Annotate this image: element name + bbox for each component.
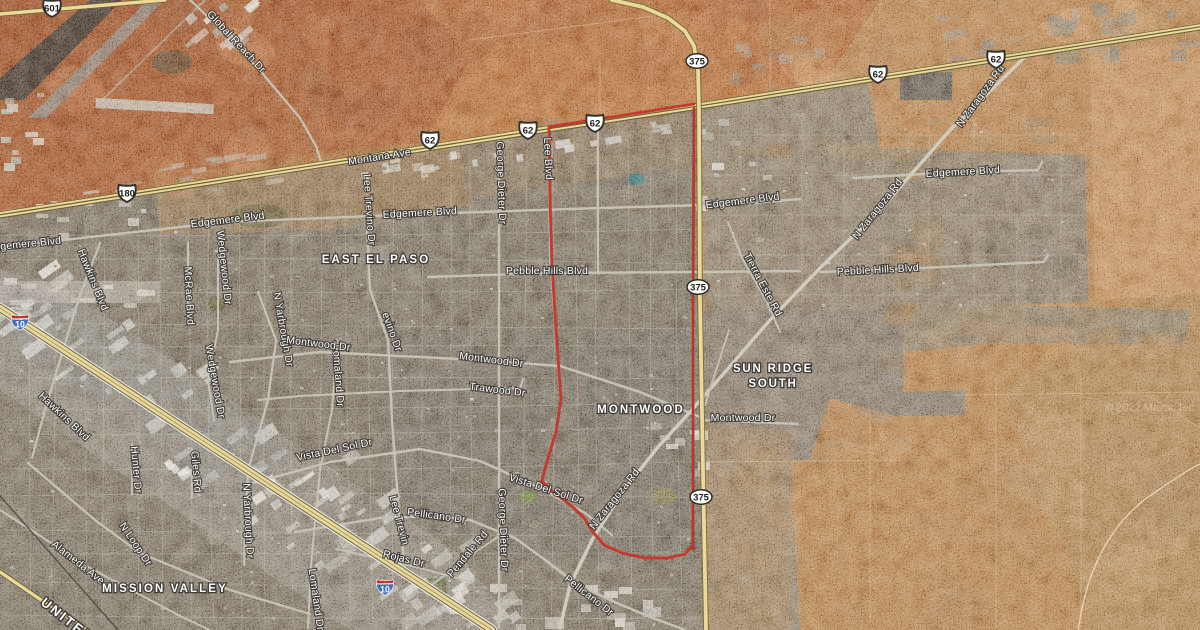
svg-text:62: 62 bbox=[873, 70, 884, 81]
svg-text:Lee Blvd: Lee Blvd bbox=[541, 137, 555, 180]
svg-text:SUN RIDGE: SUN RIDGE bbox=[733, 363, 813, 375]
svg-text:Pebble Hills Blvd: Pebble Hills Blvd bbox=[506, 265, 588, 277]
svg-text:© 2022 Maxar Tec: © 2022 Maxar Tec bbox=[1105, 402, 1195, 414]
svg-text:375: 375 bbox=[693, 492, 710, 503]
svg-text:10: 10 bbox=[380, 585, 390, 595]
svg-text:MISSION VALLEY: MISSION VALLEY bbox=[102, 583, 228, 595]
svg-text:62: 62 bbox=[425, 136, 436, 147]
svg-text:62: 62 bbox=[991, 55, 1002, 66]
svg-text:62: 62 bbox=[590, 119, 601, 130]
svg-text:601: 601 bbox=[44, 4, 61, 15]
svg-text:MONTWOOD: MONTWOOD bbox=[597, 404, 685, 416]
svg-text:10: 10 bbox=[15, 320, 25, 330]
svg-text:180: 180 bbox=[119, 189, 135, 200]
svg-text:Montwood Dr: Montwood Dr bbox=[711, 412, 776, 424]
svg-text:62: 62 bbox=[523, 126, 534, 137]
svg-text:SOUTH: SOUTH bbox=[748, 378, 797, 390]
svg-text:375: 375 bbox=[690, 282, 707, 293]
svg-text:EAST EL PASO: EAST EL PASO bbox=[322, 254, 431, 266]
svg-text:375: 375 bbox=[689, 56, 706, 67]
